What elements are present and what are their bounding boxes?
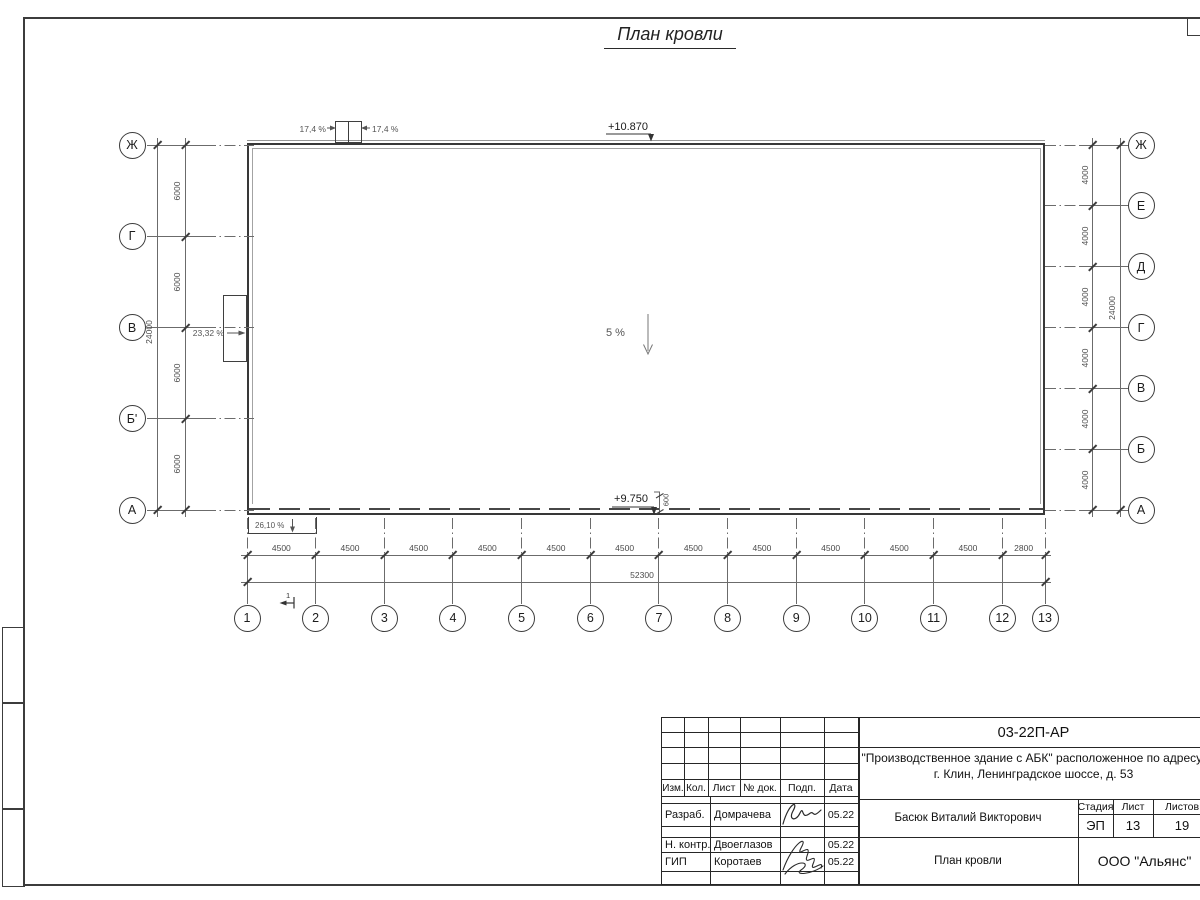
axis-circle: А bbox=[119, 497, 146, 524]
axis-stub bbox=[933, 518, 934, 554]
slope-south-label: 26,10 % bbox=[255, 521, 284, 530]
axis-circle: Г bbox=[119, 223, 146, 250]
tb-name-2: Коротаев bbox=[714, 852, 780, 871]
tb-project-line1: "Производственное здание с АБК" располож… bbox=[858, 750, 1200, 766]
axis-stub bbox=[658, 518, 659, 554]
tb-name-1: Двоеглазов bbox=[714, 837, 780, 852]
axis-circle: 13 bbox=[1032, 605, 1059, 632]
axis-stub bbox=[1045, 205, 1079, 206]
axis-circle: 8 bbox=[714, 605, 741, 632]
tb-line bbox=[662, 763, 858, 764]
tb-stage-label: Стадия bbox=[1078, 799, 1113, 814]
axis-stub bbox=[384, 554, 385, 604]
dim-text-total: 52300 bbox=[630, 570, 654, 580]
dim-text: 4500 bbox=[478, 543, 497, 553]
axis-stub bbox=[796, 518, 797, 554]
tb-project-line2: г. Клин, Ленинградское шоссе, д. 53 bbox=[858, 766, 1200, 782]
roof-inner-line bbox=[252, 148, 1041, 504]
axis-stub bbox=[315, 518, 316, 554]
slope-west-label: 23,32 % bbox=[193, 328, 224, 338]
axis-circle: 11 bbox=[920, 605, 947, 632]
axis-circle: 2 bbox=[302, 605, 329, 632]
dim-chain bbox=[1120, 138, 1121, 517]
tb-line bbox=[662, 732, 858, 733]
axis-stub bbox=[1045, 518, 1046, 554]
axis-stub bbox=[1045, 510, 1079, 511]
axis-stub bbox=[147, 418, 205, 419]
elevation-top-label: +10.870 bbox=[608, 121, 648, 133]
axis-stub bbox=[796, 554, 797, 604]
tb-col-izm: Изм. bbox=[662, 780, 684, 796]
tb-sheet-number: 13 bbox=[1113, 814, 1153, 837]
dim-text: 4500 bbox=[684, 543, 703, 553]
dim-text: 6000 bbox=[172, 455, 182, 474]
axis-stub bbox=[658, 554, 659, 604]
frame-top-line bbox=[23, 17, 1200, 19]
tb-name-0: Домрачева bbox=[714, 803, 780, 826]
title-block: Изм. Кол. Лист № док. Подп. Дата Разраб.… bbox=[661, 717, 1200, 885]
dim-text: 4500 bbox=[752, 543, 771, 553]
dim-text: 4500 bbox=[890, 543, 909, 553]
tb-sheets-label: Листов bbox=[1153, 799, 1200, 814]
sheet-title: План кровли bbox=[520, 24, 820, 49]
dim-text: 2800 bbox=[1014, 543, 1033, 553]
roof-hidden-dashed-line bbox=[249, 508, 1043, 510]
axis-circle: 3 bbox=[371, 605, 398, 632]
hatch-slope-right-label: 17,4 % bbox=[372, 124, 398, 134]
axis-circle: Б bbox=[1128, 436, 1155, 463]
tb-sheet-label: Лист bbox=[1113, 799, 1153, 814]
axis-stub bbox=[590, 554, 591, 604]
axis-stub bbox=[247, 518, 248, 554]
axis-circle: Ж bbox=[119, 132, 146, 159]
dim-text: 4500 bbox=[821, 543, 840, 553]
tb-role-0: Разраб. bbox=[665, 803, 710, 826]
section-mark-label: 1 bbox=[286, 591, 290, 600]
dim-text: 4000 bbox=[1080, 288, 1090, 307]
dim-text: 6000 bbox=[172, 181, 182, 200]
tb-col-kol: Кол. bbox=[684, 780, 708, 796]
axis-stub bbox=[1045, 266, 1079, 267]
axis-stub bbox=[521, 554, 522, 604]
axis-circle: Г bbox=[1128, 314, 1155, 341]
axis-circle: В bbox=[1128, 375, 1155, 402]
dim-text: 6000 bbox=[172, 272, 182, 291]
roof-hatch-divider bbox=[348, 121, 349, 143]
axis-circle: Ж bbox=[1128, 132, 1155, 159]
roof-top-thin-line bbox=[247, 140, 1045, 141]
dim-text: 4500 bbox=[341, 543, 360, 553]
axis-stub bbox=[933, 554, 934, 604]
margin-box bbox=[2, 702, 25, 810]
margin-box bbox=[2, 627, 25, 704]
axis-circle: 10 bbox=[851, 605, 878, 632]
axis-circle: Б' bbox=[119, 405, 146, 432]
dim-text: 4000 bbox=[1080, 409, 1090, 428]
axis-stub bbox=[147, 236, 205, 237]
dim-chain bbox=[157, 138, 158, 517]
tb-company: ООО "Альянс" bbox=[1078, 837, 1200, 884]
axis-circle: Д bbox=[1128, 253, 1155, 280]
axis-circle: 9 bbox=[783, 605, 810, 632]
hatch-slope-left-label: 17,4 % bbox=[300, 124, 326, 134]
axis-stub bbox=[727, 554, 728, 604]
signature-gip bbox=[775, 830, 829, 882]
axis-stub bbox=[521, 518, 522, 554]
elevation-bottom-label: +9.750 bbox=[614, 493, 648, 505]
overhang-dim-label: 600 bbox=[662, 494, 671, 507]
axis-circle: 1 bbox=[234, 605, 261, 632]
tb-col-podp: Подп. bbox=[780, 780, 824, 796]
signature-razrab bbox=[779, 798, 825, 832]
tb-line bbox=[662, 826, 858, 827]
tb-approver: Басюк Виталий Викторович bbox=[858, 799, 1078, 837]
axis-stub bbox=[1045, 145, 1079, 146]
tb-col-ndok: № док. bbox=[740, 780, 780, 796]
tb-role-2: ГИП bbox=[665, 852, 713, 871]
dim-text: 4000 bbox=[1080, 348, 1090, 367]
axis-stub bbox=[205, 327, 254, 328]
tb-line bbox=[662, 747, 1200, 748]
axis-circle: 4 bbox=[439, 605, 466, 632]
axis-stub bbox=[205, 236, 254, 237]
tb-date-0: 05.22 bbox=[824, 803, 858, 826]
dim-chain bbox=[241, 582, 1051, 583]
axis-stub bbox=[452, 554, 453, 604]
tb-role-1: Н. контр. bbox=[665, 837, 713, 852]
tb-stage-value: ЭП bbox=[1078, 814, 1113, 837]
frame-corner-box bbox=[1187, 17, 1200, 36]
tb-col-list: Лист bbox=[708, 780, 740, 796]
dim-text: 4000 bbox=[1080, 470, 1090, 489]
margin-box bbox=[2, 808, 25, 887]
axis-stub bbox=[727, 518, 728, 554]
axis-circle: 7 bbox=[645, 605, 672, 632]
axis-stub bbox=[864, 554, 865, 604]
sheet-title-text: План кровли bbox=[604, 24, 736, 49]
tb-date-1: 05.22 bbox=[824, 837, 858, 852]
dim-text: 6000 bbox=[172, 364, 182, 383]
canopy-west bbox=[223, 295, 247, 362]
axis-stub bbox=[452, 518, 453, 554]
tb-sheets-total: 19 bbox=[1153, 814, 1200, 837]
dim-text: 4500 bbox=[958, 543, 977, 553]
axis-circle: 12 bbox=[989, 605, 1016, 632]
axis-stub bbox=[590, 518, 591, 554]
tb-col-data: Дата bbox=[824, 780, 858, 796]
dim-text: 4000 bbox=[1080, 166, 1090, 185]
axis-stub bbox=[205, 145, 254, 146]
axis-stub bbox=[1045, 449, 1079, 450]
dim-text: 4500 bbox=[547, 543, 566, 553]
axis-stub bbox=[384, 518, 385, 554]
axis-stub bbox=[205, 510, 254, 511]
axis-stub bbox=[1002, 554, 1003, 604]
axis-circle: 5 bbox=[508, 605, 535, 632]
tb-doc-number: 03-22П-АР bbox=[858, 718, 1200, 747]
tb-date-2: 05.22 bbox=[824, 852, 858, 871]
dim-text: 4500 bbox=[272, 543, 291, 553]
tb-drawing-name: План кровли bbox=[858, 837, 1078, 884]
axis-circle: 6 bbox=[577, 605, 604, 632]
axis-circle: А bbox=[1128, 497, 1155, 524]
axis-stub bbox=[205, 418, 254, 419]
dim-text-total: 24000 bbox=[144, 320, 154, 344]
axis-circle: Е bbox=[1128, 192, 1155, 219]
tb-line bbox=[662, 796, 858, 797]
slope-center-label: 5 % bbox=[606, 327, 625, 339]
dim-text-total: 24000 bbox=[1107, 296, 1117, 320]
axis-stub bbox=[864, 518, 865, 554]
axis-stub bbox=[1002, 518, 1003, 554]
axis-stub bbox=[1045, 388, 1079, 389]
drawing-sheet: План кровли +10.870 +9.750 5 % 23,32 % 2… bbox=[0, 0, 1200, 900]
dim-text: 4000 bbox=[1080, 227, 1090, 246]
axis-stub bbox=[315, 554, 316, 604]
dim-text: 4500 bbox=[615, 543, 634, 553]
axis-stub bbox=[147, 327, 205, 328]
dim-text: 4500 bbox=[409, 543, 428, 553]
axis-stub bbox=[1045, 327, 1079, 328]
axis-circle: В bbox=[119, 314, 146, 341]
